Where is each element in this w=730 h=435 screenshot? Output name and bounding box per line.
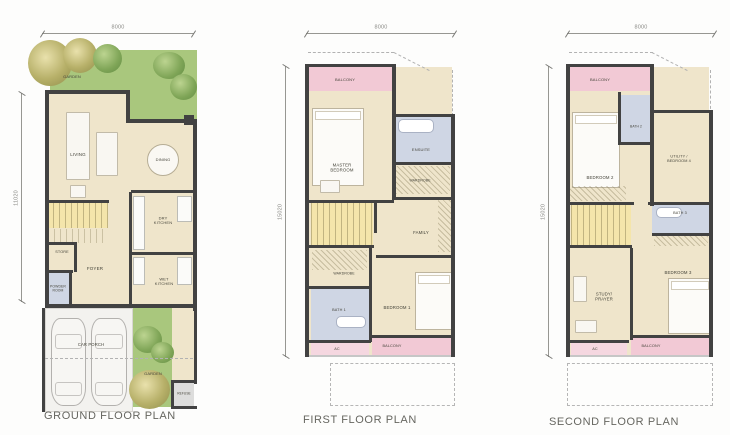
wall-segment <box>650 90 654 206</box>
bed-icon <box>668 278 712 334</box>
wall-segment <box>653 110 711 113</box>
dimension-label: 8000 <box>635 24 648 30</box>
wall-segment <box>630 335 713 338</box>
wall-segment <box>568 202 634 205</box>
room-stairs <box>571 203 631 245</box>
room-bath-2 <box>621 95 651 143</box>
wall-segment <box>566 64 654 67</box>
wardrobe-hatch <box>654 236 708 246</box>
floor-plan-title: SECOND FLOOR PLAN <box>549 416 679 428</box>
wall-segment <box>566 64 570 357</box>
wall-segment <box>652 233 711 236</box>
dimension-label: 15020 <box>540 203 546 219</box>
roof-outline <box>567 363 713 406</box>
second-floor-plan: BALCONYBEDROOM 2BATH 2UTILITY / BEDROOM … <box>0 0 730 435</box>
wall-segment <box>568 245 632 248</box>
furniture-icon <box>573 276 587 302</box>
room-label-study-prayer: STUDY/ PRAYER <box>595 292 613 302</box>
balcony-railing <box>566 355 713 357</box>
room-label-balcony: BALCONY <box>590 78 610 83</box>
wall-segment <box>648 202 711 205</box>
room-label-bedroom-3: BEDROOM 3 <box>665 270 692 275</box>
room-label-utility-bedroom-4: UTILITY / BEDROOM 4 <box>667 154 691 163</box>
room-label-bath-2: BATH 2 <box>630 125 642 129</box>
dimension-line <box>548 66 549 357</box>
wall-segment <box>621 142 652 145</box>
floor-plans-canvas: GARDENLIVINGDININGSTOREDRY KITCHENFOYERP… <box>0 0 730 435</box>
furniture-icon <box>575 320 597 333</box>
wall-segment <box>568 340 629 343</box>
room-label-balcony-rear: BALCONY <box>642 344 661 349</box>
wardrobe-hatch <box>570 186 626 201</box>
wall-segment <box>630 248 633 340</box>
room-label-bath-3: BATH 3 <box>673 211 687 216</box>
room-label-bedroom-2: BEDROOM 2 <box>587 175 614 180</box>
roof-outline <box>710 70 711 114</box>
room-label-ac-ledge: AC <box>592 347 598 352</box>
room-ac-ledge <box>571 343 627 355</box>
wall-segment <box>618 92 621 145</box>
dimension-line <box>567 33 715 34</box>
roof-outline <box>569 52 653 53</box>
